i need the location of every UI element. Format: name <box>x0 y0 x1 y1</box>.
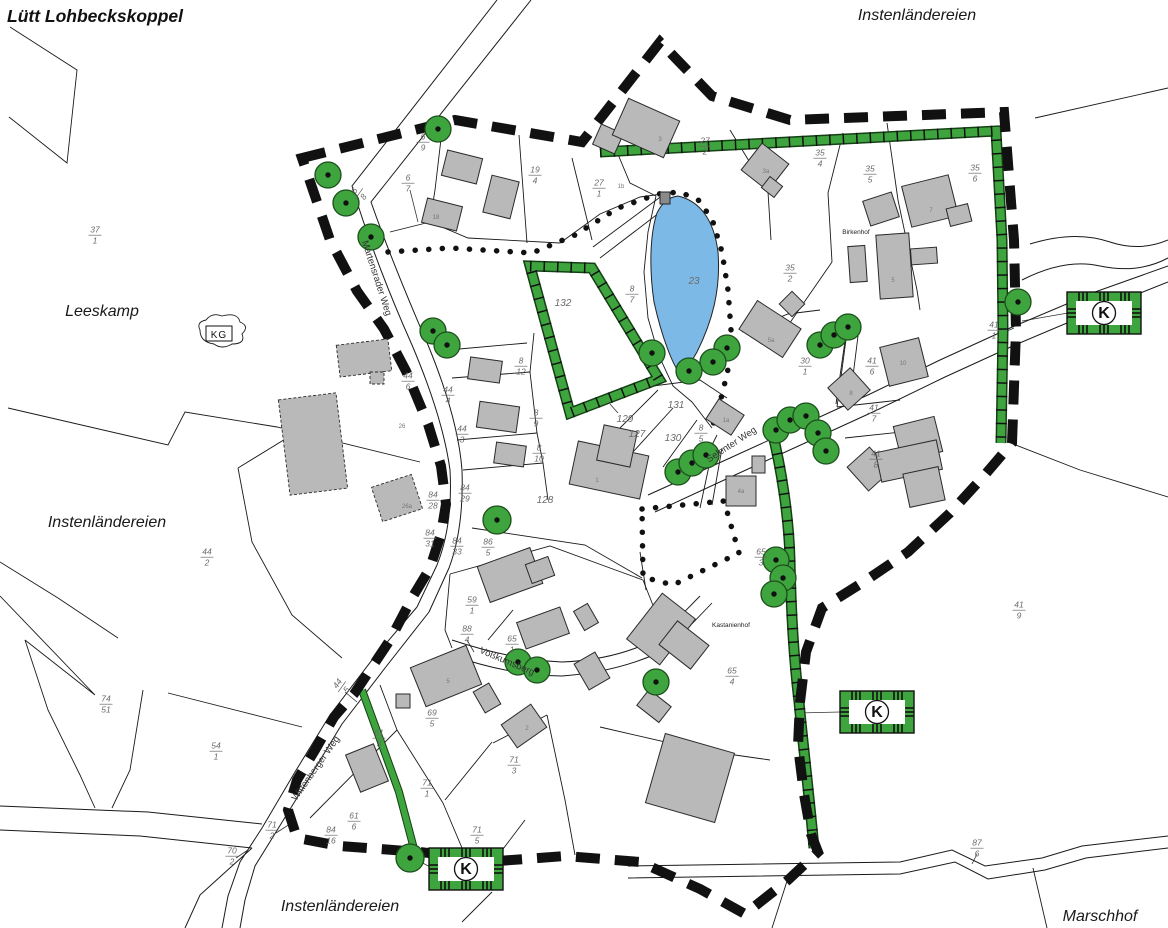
parcel-number-label: 89 <box>530 408 543 429</box>
svg-text:84: 84 <box>428 490 438 500</box>
area-label-23-pond: 23 <box>687 276 700 287</box>
svg-text:87: 87 <box>972 838 982 848</box>
place-label-leeskamp: Leeskamp <box>65 303 139 320</box>
parcel-number-label: 876 <box>971 838 984 859</box>
parcel-number-label: 416 <box>866 356 879 377</box>
svg-text:41: 41 <box>867 356 877 366</box>
farm-label-kastanienhof: Kastanienhof <box>712 622 750 629</box>
svg-text:54: 54 <box>211 741 221 751</box>
svg-text:61: 61 <box>374 728 384 738</box>
svg-text:9: 9 <box>1017 611 1022 621</box>
svg-text:1: 1 <box>803 367 808 377</box>
svg-text:84: 84 <box>460 483 470 493</box>
svg-text:69: 69 <box>427 708 437 718</box>
map-canvas: KG 3716967681942712723543553563528781289… <box>0 0 1168 928</box>
svg-text:5: 5 <box>341 685 352 695</box>
parcel-number-label: 445 <box>329 675 354 698</box>
parcel-number-label: 702 <box>226 846 239 867</box>
svg-text:44: 44 <box>403 371 413 381</box>
tree-icon <box>639 340 665 366</box>
building <box>517 607 570 649</box>
house-number: 10 <box>900 361 907 367</box>
farm-label-birkenhof: Birkenhof <box>842 229 870 236</box>
svg-text:65: 65 <box>507 634 517 644</box>
svg-text:35: 35 <box>970 163 980 173</box>
svg-text:44: 44 <box>443 385 453 395</box>
svg-text:5: 5 <box>868 175 873 185</box>
house-number: 3a <box>763 169 770 175</box>
parcel-number-label: 271 <box>593 178 606 199</box>
parcel-number-label: 711 <box>421 778 434 799</box>
svg-text:4: 4 <box>465 635 470 645</box>
building <box>574 603 599 630</box>
parcel-number-label: 713 <box>508 755 521 776</box>
parcel-number-label: 884 <box>461 624 474 645</box>
parcel-number-label: 419 <box>1013 600 1026 621</box>
svg-text:6: 6 <box>406 382 411 392</box>
svg-text:1: 1 <box>597 189 602 199</box>
building <box>476 401 519 432</box>
parcel-number-label: 272 <box>699 136 712 157</box>
svg-text:10: 10 <box>534 454 544 464</box>
place-label-luett-lohbeckskoppel: Lütt Lohbeckskoppel <box>7 6 184 26</box>
tree-icon <box>315 162 341 188</box>
building <box>468 357 503 383</box>
building <box>473 683 501 713</box>
building <box>779 291 804 316</box>
svg-text:35: 35 <box>815 148 825 158</box>
area-label-130: 130 <box>665 433 682 444</box>
tree-icon <box>700 349 726 375</box>
parcel-number-label: 812 <box>515 356 528 377</box>
svg-text:8: 8 <box>874 460 879 470</box>
svg-text:59: 59 <box>467 595 477 605</box>
place-label-instenlaendereien-s: Instenländereien <box>281 898 399 915</box>
tree-icon <box>813 438 839 464</box>
tree-icon <box>425 116 451 142</box>
parcel-number-label: 712 <box>266 820 279 841</box>
building <box>483 175 519 219</box>
svg-text:84: 84 <box>425 528 435 538</box>
svg-text:12: 12 <box>516 367 526 377</box>
kg-symbol: KG <box>199 315 246 347</box>
parcel-number-label: 7451 <box>100 694 113 715</box>
svg-text:31: 31 <box>425 539 435 549</box>
parcel-number-label: 443 <box>456 424 469 445</box>
parcel-number-label: 616 <box>348 811 361 832</box>
building <box>501 704 547 748</box>
parcel-number-label: 371 <box>89 225 102 246</box>
cadastral-plan-map: KG 3716967681942712723543553563528781289… <box>0 0 1168 928</box>
building <box>645 733 734 822</box>
place-label-instenlaendereien-w: Instenländereien <box>48 514 166 531</box>
parcel-number-label: 444 <box>442 385 455 406</box>
svg-text:1: 1 <box>992 331 997 341</box>
building <box>910 247 937 265</box>
svg-text:44: 44 <box>457 424 467 434</box>
parcel-number-label: 85 <box>695 423 708 444</box>
svg-text:28: 28 <box>427 501 438 511</box>
area-label-131: 131 <box>668 400 685 411</box>
svg-text:8: 8 <box>699 423 704 433</box>
svg-text:8: 8 <box>534 408 539 418</box>
svg-text:9: 9 <box>421 143 426 153</box>
svg-text:70: 70 <box>227 846 237 856</box>
svg-text:86: 86 <box>483 537 493 547</box>
svg-text:8: 8 <box>519 356 524 366</box>
svg-text:44: 44 <box>202 547 212 557</box>
svg-text:41: 41 <box>989 320 999 330</box>
building <box>336 339 392 377</box>
parcel-number-label: 654 <box>726 666 739 687</box>
svg-text:8: 8 <box>358 192 369 202</box>
building <box>752 456 765 473</box>
place-label-marschhof: Marschhof <box>1063 908 1139 925</box>
parcel-number-label: 194 <box>529 165 542 186</box>
svg-text:2: 2 <box>787 274 793 284</box>
building <box>370 372 384 384</box>
svg-text:29: 29 <box>459 494 470 504</box>
building <box>441 150 482 184</box>
house-number: 18 <box>433 215 440 221</box>
parcel-number-label: 442 <box>201 547 214 568</box>
svg-text:41: 41 <box>871 449 881 459</box>
svg-text:84: 84 <box>452 536 462 546</box>
svg-text:4: 4 <box>818 159 823 169</box>
svg-text:51: 51 <box>101 705 111 715</box>
svg-text:8: 8 <box>630 284 635 294</box>
kg-label: KG <box>211 330 227 341</box>
building <box>371 474 422 521</box>
parcel-number-label: 301 <box>799 356 812 377</box>
parcel-number-label: 8429 <box>459 483 472 504</box>
svg-text:71: 71 <box>267 820 277 830</box>
svg-text:1: 1 <box>214 752 219 762</box>
parcel-number-label: 8431 <box>424 528 437 549</box>
house-number: 4a <box>738 489 745 495</box>
svg-text:5: 5 <box>486 548 491 558</box>
building <box>410 645 481 706</box>
building <box>863 192 900 226</box>
svg-text:30: 30 <box>800 356 810 366</box>
svg-text:74: 74 <box>101 694 111 704</box>
building <box>278 393 347 495</box>
svg-text:2: 2 <box>204 558 210 568</box>
house-number: 1b <box>618 184 625 190</box>
svg-text:71: 71 <box>422 778 432 788</box>
svg-text:7: 7 <box>406 184 411 194</box>
house-number: 26a <box>402 504 413 510</box>
tree-icon <box>483 506 511 534</box>
building <box>422 198 463 231</box>
parcel-number-label: 810 <box>533 443 546 464</box>
svg-text:4: 4 <box>446 396 451 406</box>
parcel-number-label: 356 <box>969 163 982 184</box>
svg-text:71: 71 <box>472 825 482 835</box>
svg-text:6: 6 <box>975 849 980 859</box>
svg-text:K: K <box>460 861 472 878</box>
parcel-number-label: 354 <box>814 148 827 169</box>
svg-text:41: 41 <box>1014 600 1024 610</box>
svg-text:4: 4 <box>730 677 735 687</box>
svg-text:16: 16 <box>326 836 336 846</box>
tree-icon <box>676 358 702 384</box>
house-number: 1a <box>723 418 730 424</box>
svg-text:8: 8 <box>537 443 542 453</box>
building <box>903 467 945 508</box>
svg-text:1: 1 <box>510 645 515 655</box>
svg-text:35: 35 <box>865 164 875 174</box>
tree-icon <box>835 314 861 340</box>
svg-text:65: 65 <box>756 547 766 557</box>
svg-text:5: 5 <box>475 836 480 846</box>
svg-text:84: 84 <box>326 825 336 835</box>
area-label-128: 128 <box>537 495 554 506</box>
tree-icon <box>643 669 669 695</box>
knick-k-symbol-box: K <box>1067 292 1141 334</box>
building <box>396 694 410 708</box>
parcel-number-label: 8433 <box>451 536 464 557</box>
place-label-instenlaendereien-ne: Instenländereien <box>858 7 976 24</box>
svg-text:65: 65 <box>727 666 737 676</box>
svg-text:6: 6 <box>352 822 357 832</box>
svg-text:3: 3 <box>759 558 764 568</box>
house-number: 26 <box>399 424 406 430</box>
parcel-number-label: 695 <box>426 708 439 729</box>
area-label-127: 127 <box>629 429 646 440</box>
svg-text:2: 2 <box>269 831 275 841</box>
svg-text:3: 3 <box>460 435 465 445</box>
svg-text:37: 37 <box>90 225 100 235</box>
svg-text:6: 6 <box>870 367 875 377</box>
svg-text:1: 1 <box>93 236 98 246</box>
building <box>574 652 610 690</box>
building <box>660 192 670 204</box>
tree-icon <box>434 332 460 358</box>
svg-text:9: 9 <box>534 419 539 429</box>
parcel-number-label: 417 <box>868 403 881 424</box>
area-label-129: 129 <box>617 414 634 425</box>
tree-icon <box>761 581 787 607</box>
svg-text:1: 1 <box>470 606 475 616</box>
parcel-number-label: 8428 <box>427 490 440 511</box>
svg-text:33: 33 <box>452 547 462 557</box>
svg-text:3: 3 <box>377 739 382 749</box>
parcel-number-label: 8416 <box>325 825 338 846</box>
area-label-132: 132 <box>555 298 572 309</box>
svg-text:2: 2 <box>702 147 708 157</box>
svg-text:3: 3 <box>512 766 517 776</box>
tree-icon <box>396 844 424 872</box>
svg-text:71: 71 <box>509 755 519 765</box>
svg-text:2: 2 <box>229 857 235 867</box>
parcel-number-label: 541 <box>210 741 223 762</box>
svg-text:88: 88 <box>462 624 472 634</box>
house-number: 5a <box>768 338 775 344</box>
svg-text:7: 7 <box>630 295 635 305</box>
building <box>706 399 744 435</box>
building <box>494 442 527 467</box>
parcel-number-label: 715 <box>471 825 484 846</box>
parcel-number-label: 355 <box>864 164 877 185</box>
building <box>848 245 867 282</box>
knick-k-symbol-box: K <box>840 691 914 733</box>
building <box>876 233 913 299</box>
svg-text:19: 19 <box>530 165 540 175</box>
svg-text:27: 27 <box>593 178 604 188</box>
parcel-number-label: 67 <box>402 173 415 194</box>
svg-text:4: 4 <box>533 176 538 186</box>
parcel-number-label: 591 <box>466 595 479 616</box>
svg-text:61: 61 <box>349 811 359 821</box>
tree-icon <box>1005 289 1031 315</box>
svg-text:5: 5 <box>699 434 704 444</box>
svg-text:41: 41 <box>869 403 879 413</box>
svg-text:35: 35 <box>785 263 795 273</box>
parcel-number-label: 87 <box>626 284 639 305</box>
svg-text:27: 27 <box>699 136 710 146</box>
svg-text:6: 6 <box>421 132 426 142</box>
svg-text:6: 6 <box>973 174 978 184</box>
parcel-number-label: 865 <box>482 537 495 558</box>
svg-text:K: K <box>871 704 883 721</box>
svg-text:7: 7 <box>872 414 877 424</box>
parcel-number-label: 352 <box>784 263 797 284</box>
svg-text:K: K <box>1098 305 1110 322</box>
svg-text:1: 1 <box>425 789 430 799</box>
knick-k-symbol-box: K <box>429 848 503 890</box>
svg-text:6: 6 <box>406 173 411 183</box>
svg-text:5: 5 <box>430 719 435 729</box>
